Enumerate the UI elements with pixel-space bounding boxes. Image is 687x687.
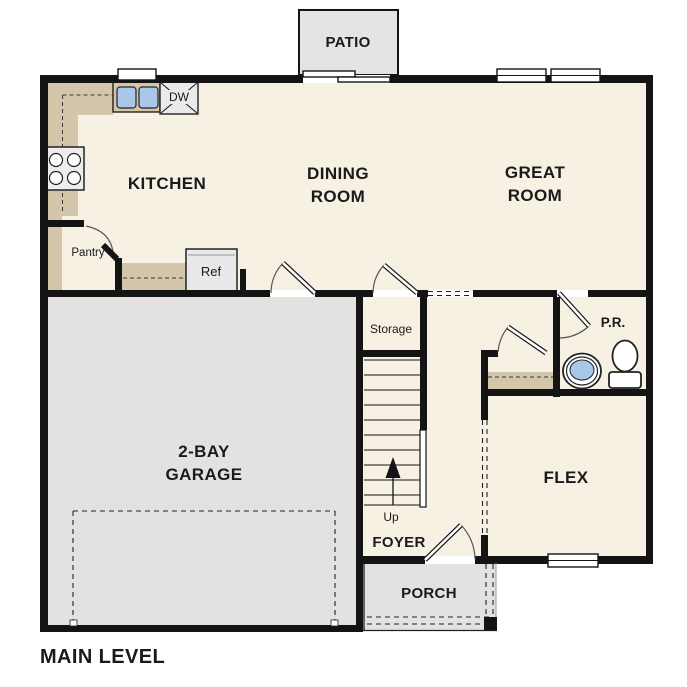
door-opening (373, 290, 417, 297)
burner-icon (50, 154, 63, 167)
burner-icon (50, 172, 63, 185)
garage-door-jamb (331, 620, 338, 626)
dining-room-label-line2: ROOM (311, 187, 365, 206)
wall (40, 75, 48, 632)
wall (646, 75, 653, 564)
foyer-label: FOYER (372, 534, 425, 551)
burner-icon (68, 172, 81, 185)
wall (115, 258, 122, 297)
wall (420, 297, 427, 430)
wall (553, 297, 560, 397)
floor-plan-canvas: PATIO KITCHEN DINING ROOM GREAT ROOM 2-B… (0, 0, 687, 687)
wall (481, 535, 488, 556)
garage-label-line1: 2-BAY (178, 442, 230, 461)
wall (473, 290, 557, 297)
kitchen-label: KITCHEN (128, 174, 206, 193)
door-opening (271, 290, 315, 297)
wall (481, 389, 653, 396)
sliding-door-panel-icon (303, 71, 355, 77)
up-label: Up (383, 510, 399, 524)
wall (40, 625, 363, 632)
wall (587, 290, 653, 297)
wall (240, 269, 246, 297)
patio-label: PATIO (325, 34, 370, 51)
wall (40, 290, 270, 297)
kitchen-sink-basin-icon (117, 87, 136, 108)
sink-basin-icon (570, 360, 594, 380)
porch-label: PORCH (401, 585, 457, 602)
garage-door-jamb (70, 620, 77, 626)
stair-handrail (420, 430, 426, 507)
wall (417, 290, 428, 297)
garage-label-line2: GARAGE (165, 465, 242, 484)
burner-icon (68, 154, 81, 167)
powder-room-label: P.R. (601, 315, 626, 330)
wall (481, 353, 488, 389)
garage-floor (47, 297, 356, 625)
sliding-door-panel-icon (338, 77, 390, 82)
great-room-label-line1: GREAT (505, 163, 565, 182)
closet-floor (488, 372, 553, 389)
pantry-label: Pantry (71, 247, 104, 259)
dishwasher-label: DW (169, 90, 190, 104)
plan-title: MAIN LEVEL (40, 646, 165, 668)
toilet-tank-icon (609, 372, 641, 388)
wall (356, 297, 363, 625)
wall (315, 290, 373, 297)
dining-room-label-line1: DINING (307, 164, 369, 183)
refrigerator-label: Ref (201, 264, 222, 279)
counter-pantry-strip (47, 216, 62, 294)
flex-label: FLEX (543, 468, 588, 487)
porch-post (484, 617, 497, 630)
door-opening (425, 556, 475, 564)
wall (40, 220, 84, 227)
wall (475, 556, 481, 564)
storage-label: Storage (370, 322, 412, 336)
wall (363, 556, 425, 564)
floor-plan: PATIO KITCHEN DINING ROOM GREAT ROOM 2-B… (0, 0, 687, 687)
wall (363, 350, 420, 357)
kitchen-sink-basin-icon (139, 87, 158, 108)
great-room-label-line2: ROOM (508, 186, 562, 205)
wall (481, 396, 488, 420)
toilet-bowl-icon (613, 341, 638, 372)
window-icon (118, 69, 156, 80)
